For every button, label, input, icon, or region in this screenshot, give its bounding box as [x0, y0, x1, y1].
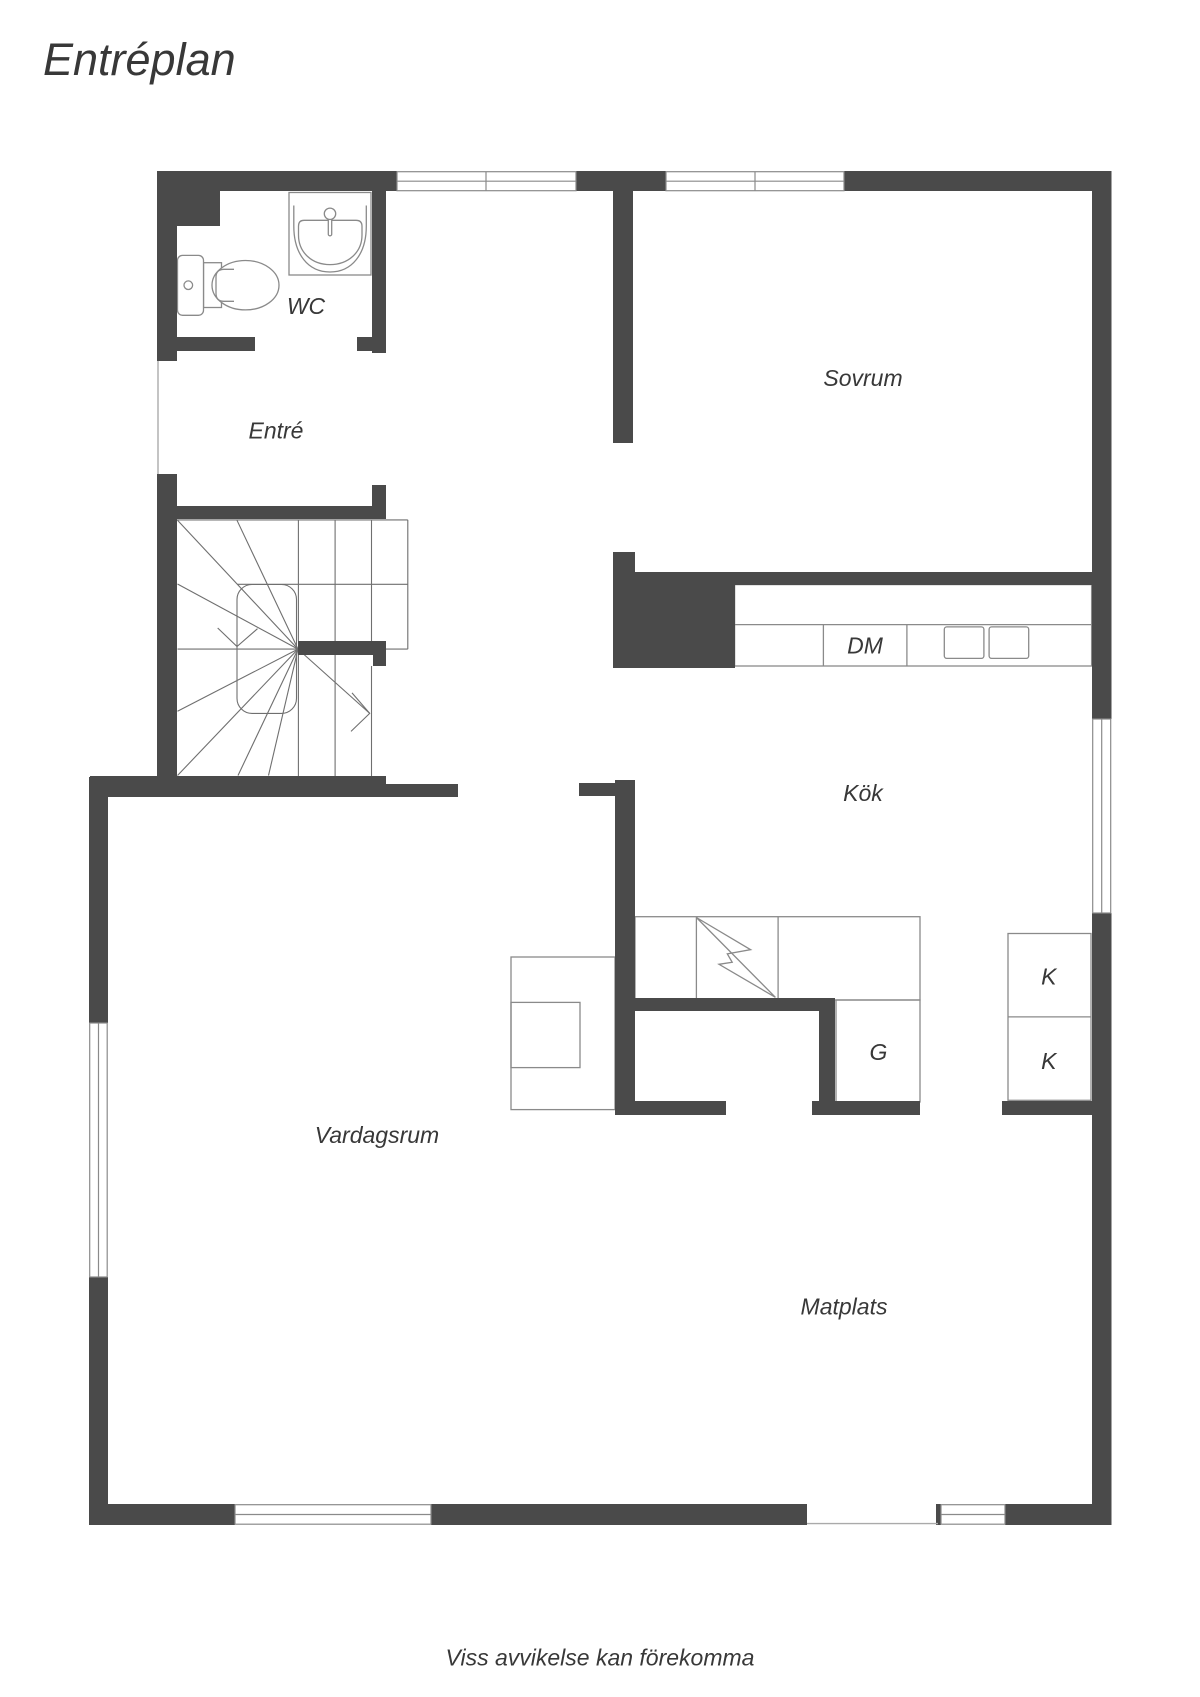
svg-text:WC: WC	[287, 293, 326, 319]
svg-text:K: K	[1041, 964, 1058, 990]
svg-text:Matplats: Matplats	[801, 1294, 888, 1320]
svg-text:Entré: Entré	[249, 418, 304, 444]
svg-text:Vardagsrum: Vardagsrum	[315, 1122, 439, 1148]
svg-text:Entréplan: Entréplan	[43, 34, 236, 85]
svg-text:DM: DM	[847, 633, 884, 659]
svg-text:Kök: Kök	[843, 780, 884, 806]
svg-text:Viss avvikelse kan förekomma: Viss avvikelse kan förekomma	[446, 1645, 755, 1671]
svg-text:K: K	[1041, 1048, 1058, 1074]
svg-text:G: G	[870, 1039, 888, 1065]
svg-text:Sovrum: Sovrum	[823, 365, 902, 391]
